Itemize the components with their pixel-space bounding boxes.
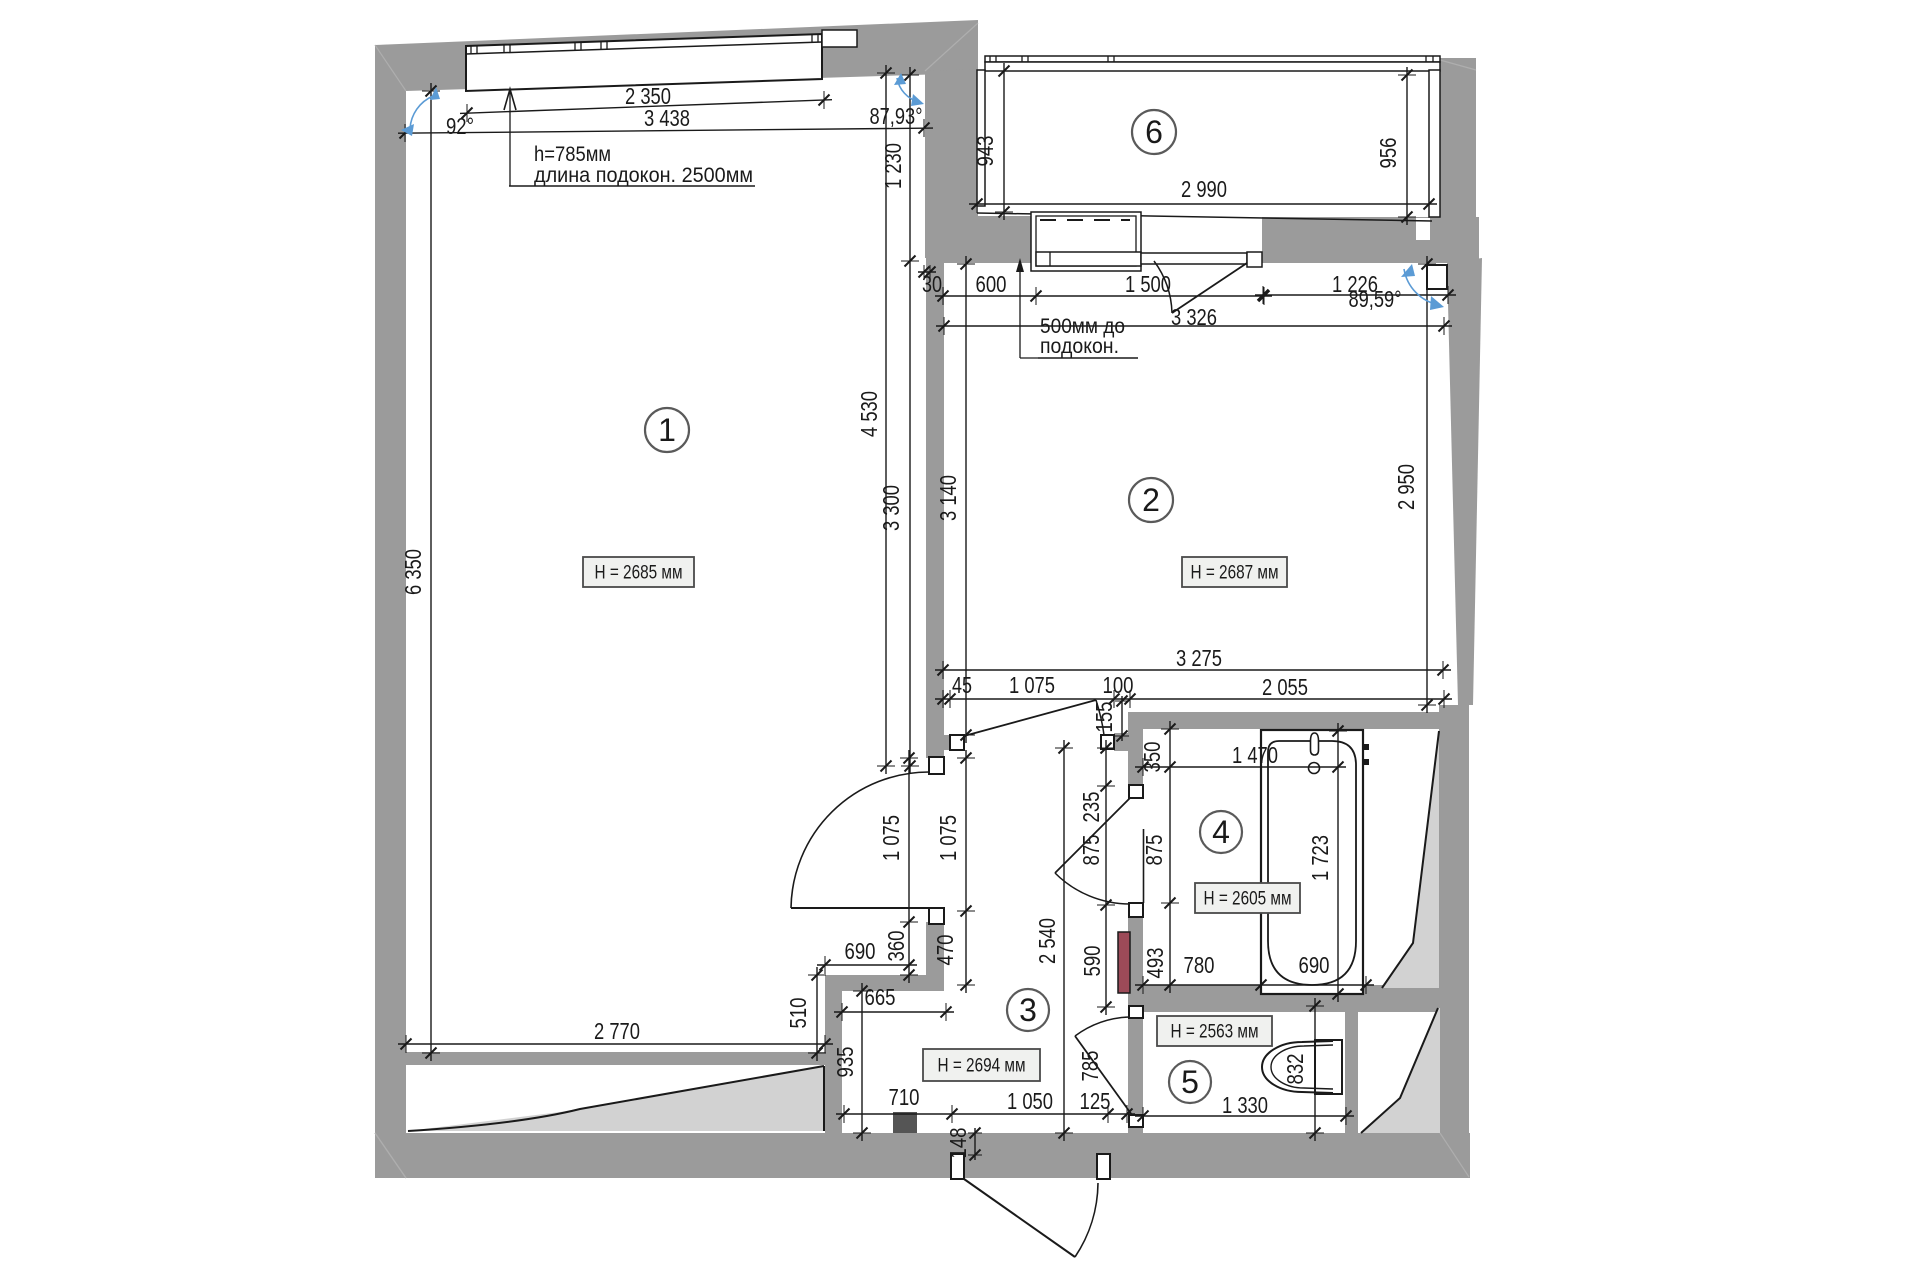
svg-text:2 055: 2 055	[1262, 674, 1308, 700]
svg-text:148: 148	[945, 1128, 971, 1159]
svg-text:H = 2694 мм: H = 2694 мм	[938, 1056, 1026, 1077]
svg-text:1 050: 1 050	[1007, 1088, 1053, 1114]
svg-text:6 350: 6 350	[400, 549, 426, 595]
svg-text:4: 4	[1212, 814, 1230, 850]
svg-text:832: 832	[1282, 1054, 1308, 1085]
svg-text:235: 235	[1078, 792, 1104, 823]
svg-text:785: 785	[1077, 1051, 1103, 1082]
svg-text:87,93°: 87,93°	[870, 103, 923, 129]
svg-text:360: 360	[883, 931, 909, 962]
svg-text:1 470: 1 470	[1232, 742, 1278, 768]
svg-text:2: 2	[1142, 482, 1160, 518]
svg-text:3 300: 3 300	[878, 485, 904, 531]
svg-text:943: 943	[972, 136, 998, 167]
svg-text:1: 1	[658, 412, 676, 448]
svg-text:1 723: 1 723	[1307, 835, 1333, 881]
svg-text:690: 690	[845, 938, 876, 964]
svg-text:H = 2563 мм: H = 2563 мм	[1171, 1022, 1259, 1043]
svg-text:155: 155	[1091, 702, 1117, 733]
svg-text:1 075: 1 075	[935, 815, 961, 861]
svg-text:3 275: 3 275	[1176, 645, 1222, 671]
svg-text:875: 875	[1078, 835, 1104, 866]
svg-text:подокон.: подокон.	[1040, 335, 1119, 358]
svg-text:1 075: 1 075	[1009, 672, 1055, 698]
svg-text:100: 100	[1103, 672, 1134, 698]
svg-text:89,59°: 89,59°	[1349, 286, 1402, 312]
svg-text:3 140: 3 140	[935, 475, 961, 521]
svg-text:92°: 92°	[446, 113, 474, 139]
svg-text:2 950: 2 950	[1393, 464, 1419, 510]
svg-text:2 770: 2 770	[594, 1018, 640, 1044]
svg-text:590: 590	[1079, 946, 1105, 977]
svg-text:600: 600	[976, 271, 1007, 297]
svg-text:2 540: 2 540	[1034, 918, 1060, 964]
svg-text:1 075: 1 075	[878, 815, 904, 861]
svg-text:690: 690	[1299, 952, 1330, 978]
svg-text:H = 2605 мм: H = 2605 мм	[1204, 889, 1292, 910]
svg-text:30: 30	[922, 271, 942, 297]
svg-text:45: 45	[952, 672, 972, 698]
svg-text:665: 665	[865, 984, 896, 1010]
svg-text:710: 710	[889, 1084, 920, 1110]
svg-text:6: 6	[1145, 114, 1163, 150]
svg-text:875: 875	[1141, 835, 1167, 866]
svg-text:h=785мм: h=785мм	[534, 143, 611, 166]
svg-text:780: 780	[1184, 952, 1215, 978]
svg-text:3 438: 3 438	[644, 105, 690, 131]
svg-text:1 230: 1 230	[880, 143, 906, 189]
svg-text:H = 2687 мм: H = 2687 мм	[1191, 563, 1279, 584]
svg-text:510: 510	[785, 998, 811, 1029]
svg-text:125: 125	[1080, 1088, 1111, 1114]
svg-text:3 326: 3 326	[1171, 304, 1217, 330]
svg-text:470: 470	[932, 935, 958, 966]
svg-text:4 530: 4 530	[856, 391, 882, 437]
svg-text:493: 493	[1142, 948, 1168, 979]
svg-text:H = 2685 мм: H = 2685 мм	[595, 563, 683, 584]
svg-text:5: 5	[1181, 1064, 1199, 1100]
svg-text:1 500: 1 500	[1125, 271, 1171, 297]
svg-text:2 990: 2 990	[1181, 176, 1227, 202]
svg-text:3: 3	[1019, 992, 1037, 1028]
svg-text:1 330: 1 330	[1222, 1092, 1268, 1118]
svg-text:длина подокон. 2500мм: длина подокон. 2500мм	[534, 164, 753, 187]
svg-text:935: 935	[832, 1047, 858, 1078]
svg-text:956: 956	[1375, 138, 1401, 169]
